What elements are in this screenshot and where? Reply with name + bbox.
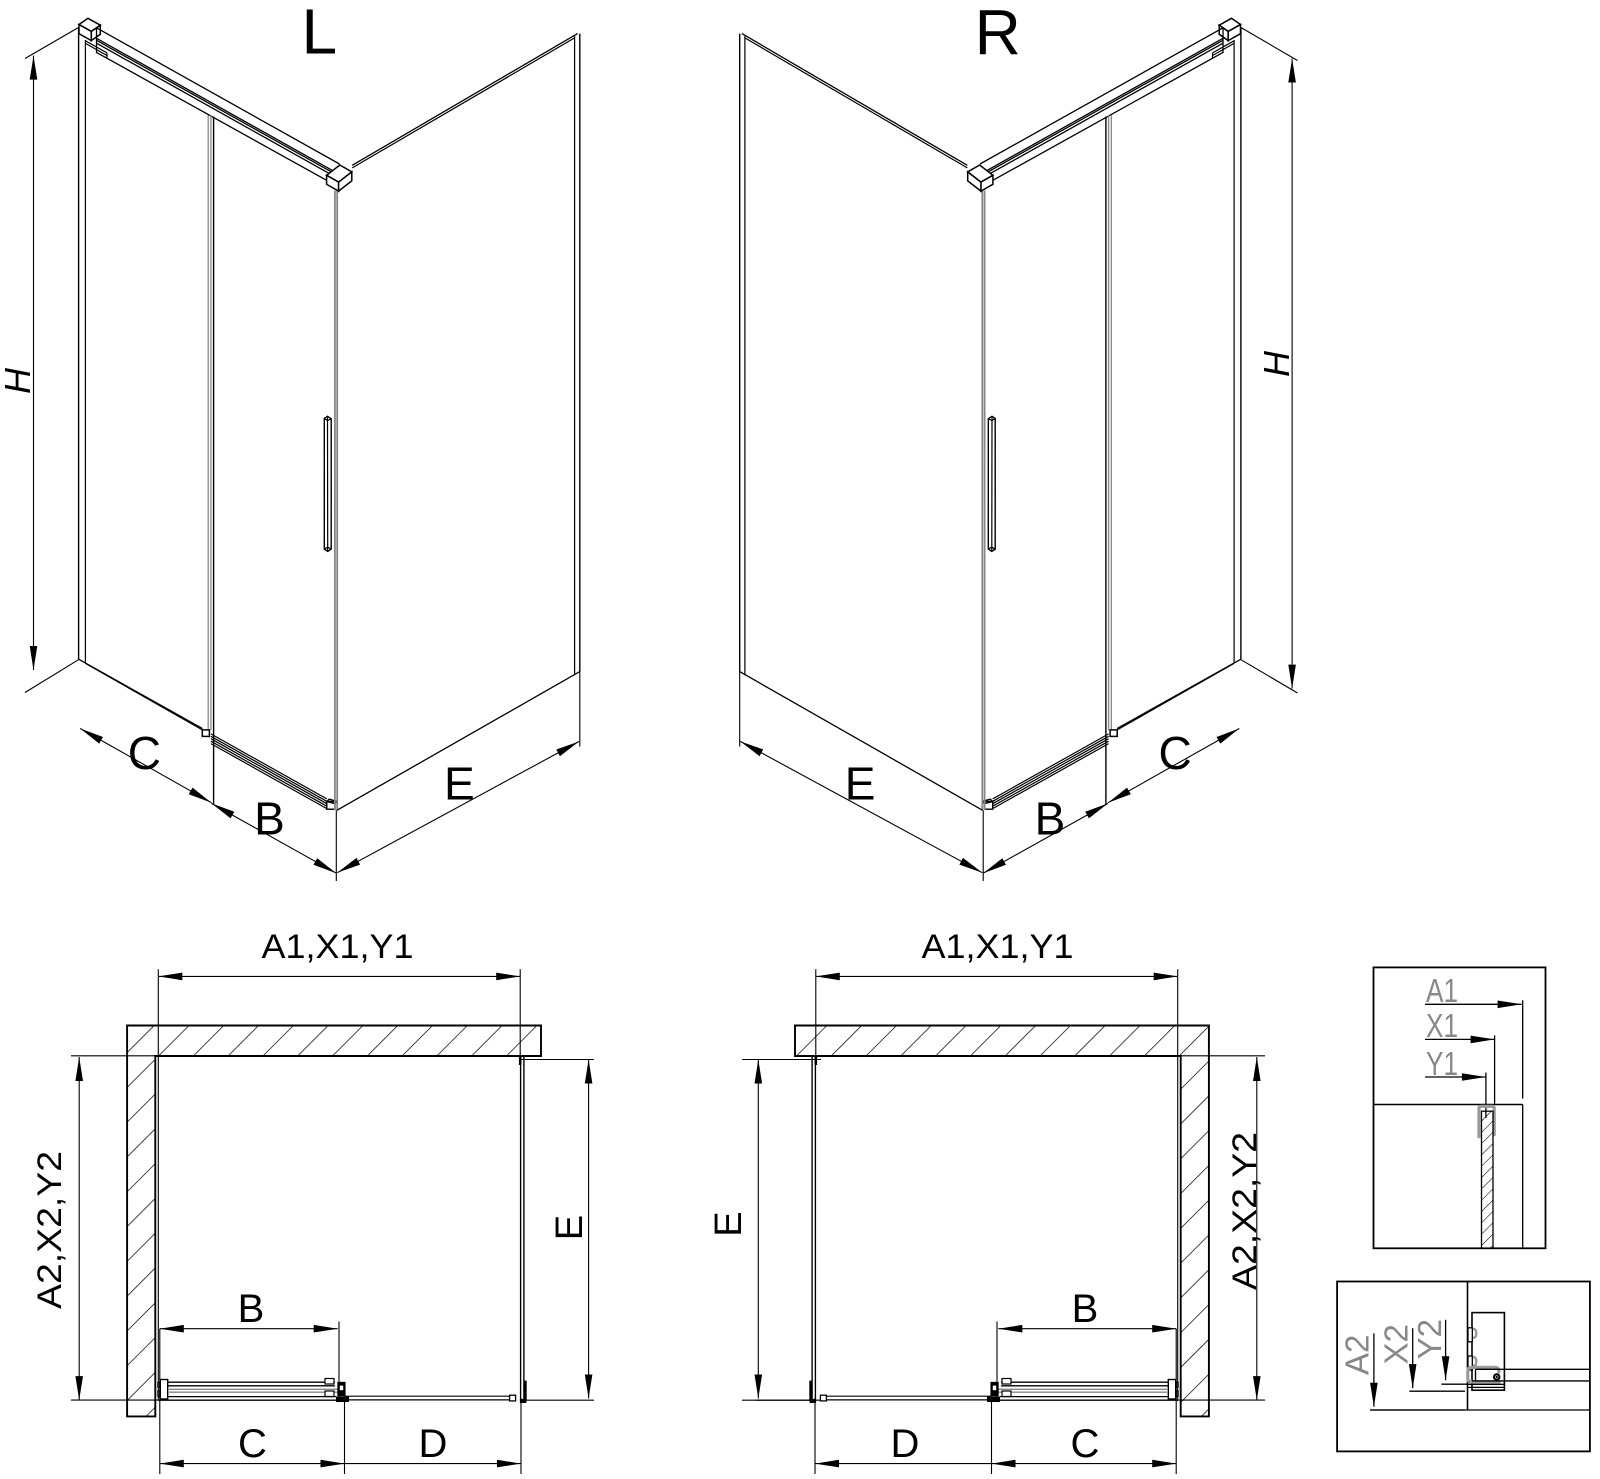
svg-text:A1,X1,Y1: A1,X1,Y1: [262, 928, 414, 966]
svg-text:A1: A1: [1426, 972, 1458, 1009]
svg-text:B: B: [1072, 1287, 1099, 1331]
svg-text:C: C: [1071, 1422, 1100, 1466]
svg-text:H: H: [1256, 350, 1297, 377]
svg-text:E: E: [549, 1215, 591, 1240]
svg-text:H: H: [0, 367, 38, 394]
svg-text:B: B: [254, 793, 285, 845]
svg-text:B: B: [238, 1287, 265, 1331]
svg-text:Y1: Y1: [1426, 1045, 1458, 1082]
svg-text:X1: X1: [1426, 1007, 1458, 1044]
svg-text:Y2: Y2: [1411, 1319, 1448, 1359]
svg-text:C: C: [1158, 727, 1191, 779]
svg-text:B: B: [1035, 793, 1066, 845]
svg-text:D: D: [419, 1422, 448, 1466]
svg-text:C: C: [238, 1422, 267, 1466]
svg-text:A2: A2: [1339, 1335, 1376, 1375]
svg-text:R: R: [975, 0, 1021, 69]
svg-text:D: D: [891, 1422, 920, 1466]
svg-text:E: E: [708, 1211, 750, 1236]
svg-text:A2,X2,Y2: A2,X2,Y2: [1226, 1132, 1264, 1290]
svg-text:E: E: [845, 757, 876, 809]
svg-text:X2: X2: [1377, 1324, 1414, 1364]
svg-text:C: C: [128, 727, 161, 779]
svg-text:E: E: [444, 757, 475, 809]
svg-text:A1,X1,Y1: A1,X1,Y1: [922, 928, 1074, 966]
svg-text:L: L: [302, 0, 338, 68]
svg-text:A2,X2,Y2: A2,X2,Y2: [31, 1151, 69, 1309]
